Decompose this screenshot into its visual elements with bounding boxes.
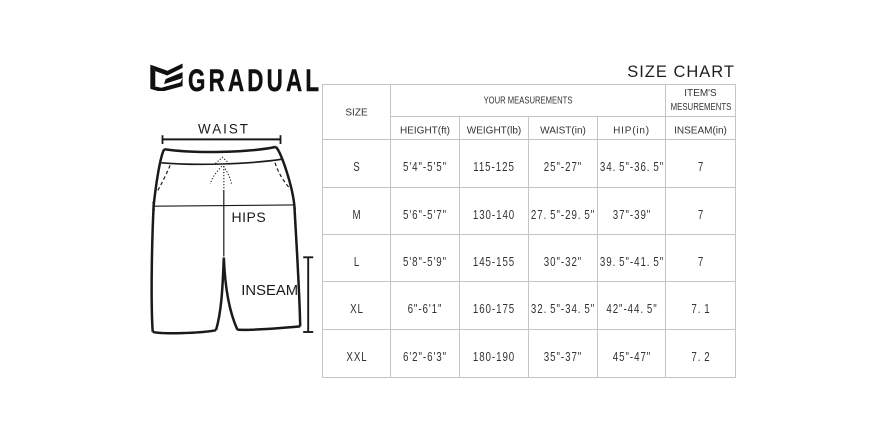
svg-text:HIPS: HIPS bbox=[232, 209, 267, 225]
svg-text:INSEAM: INSEAM bbox=[241, 283, 298, 299]
svg-text:WAIST: WAIST bbox=[198, 121, 250, 136]
